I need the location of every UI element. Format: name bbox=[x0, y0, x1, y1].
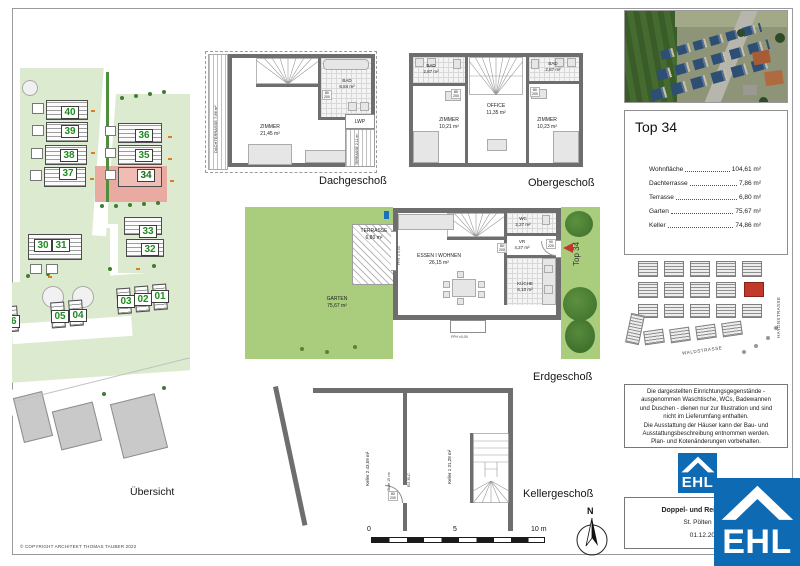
hedge-strip bbox=[106, 72, 109, 202]
map-highlighted-unit bbox=[744, 282, 764, 297]
bathtub bbox=[323, 59, 369, 70]
wall bbox=[403, 503, 407, 531]
dotted-leader bbox=[671, 213, 733, 214]
area-row: Keller74,86 m² bbox=[625, 215, 787, 229]
garage bbox=[46, 264, 58, 274]
photo-gray-house bbox=[743, 85, 757, 95]
tree-dot bbox=[26, 274, 30, 278]
bed bbox=[553, 131, 579, 163]
photo-red-roof-house bbox=[764, 70, 784, 86]
floor-plan-erdgeschoss: TERRASSE6,80 m² GARTEN75,67 m² WC2,27 m²… bbox=[245, 195, 600, 387]
lwp-label: LWP bbox=[346, 119, 374, 126]
area-label: Wohnfläche bbox=[649, 166, 683, 173]
wall bbox=[447, 237, 507, 240]
street-name-bottom: WALDSTRASSE bbox=[682, 345, 723, 356]
unit-number-34: 34 bbox=[137, 169, 155, 182]
keller1-label: Keller 1 31,28 m² bbox=[447, 445, 452, 489]
terrace-door-opening bbox=[391, 231, 396, 271]
ehl-logo-large: EHL bbox=[714, 478, 800, 566]
map-block bbox=[625, 313, 645, 345]
street-name-right: HAYDNSTRASSE bbox=[776, 268, 781, 338]
kueche-label: KÜCHE6,10 m² bbox=[509, 281, 541, 293]
copyright-note: © COPYRIGHT ARCHITEKT THOMAS TAUBER 2022 bbox=[20, 544, 136, 549]
kellergeschoss-label: Kellergeschoß bbox=[523, 488, 593, 500]
map-block bbox=[638, 282, 658, 298]
unit-info-box: Top 34 Wohnfläche104,61 m² Dachterrasse7… bbox=[624, 110, 788, 255]
fph-label: FPH ±0,00 bbox=[397, 243, 401, 265]
site-plan-label: Übersicht bbox=[130, 486, 174, 498]
dining-table bbox=[452, 279, 476, 297]
erd-stair bbox=[447, 213, 505, 237]
area-row: Wohnfläche104,61 m² bbox=[625, 159, 787, 173]
survey-marker bbox=[48, 276, 52, 278]
tree-dot bbox=[128, 203, 132, 207]
ehl-roof-icon bbox=[717, 478, 798, 523]
north-arrow: N bbox=[570, 506, 614, 558]
disclaimer-line: ausgenommen Waschtische, WCs, Badewannen bbox=[625, 396, 787, 404]
compass-icon bbox=[570, 515, 614, 559]
area-value: 104,61 m² bbox=[732, 166, 761, 173]
survey-marker bbox=[91, 152, 95, 154]
zimmer-left-label: ZIMMER10,21 m² bbox=[427, 117, 471, 130]
tree-dot bbox=[134, 94, 138, 98]
unit-number-37: 37 bbox=[59, 167, 77, 180]
unit-number-40: 40 bbox=[61, 106, 79, 119]
wall bbox=[526, 81, 583, 84]
survey-marker bbox=[91, 110, 95, 112]
disclaimer-line: Die Ausstattung der Häuser kann der Bau-… bbox=[625, 422, 787, 430]
dotted-leader bbox=[676, 199, 737, 200]
unit-number-33: 33 bbox=[139, 225, 157, 238]
door-size-tag: 80200 bbox=[451, 89, 461, 99]
tree-dot bbox=[102, 392, 106, 396]
map-tree-dot bbox=[742, 350, 746, 354]
floor-plan-dachgeschoss: DACHTERRASSE 7,86 m² BAD6,84 m² 80200 ZI… bbox=[200, 40, 396, 192]
area-label: Dachterrasse bbox=[649, 180, 688, 187]
tree bbox=[563, 287, 597, 321]
garten-label: GARTEN75,67 m² bbox=[315, 296, 359, 309]
tree-dot bbox=[162, 90, 166, 94]
map-block bbox=[669, 327, 691, 344]
disclaimer-box: Die dargestellten Einrichtungsgegenständ… bbox=[624, 384, 788, 448]
garage bbox=[32, 125, 44, 136]
stove bbox=[544, 285, 553, 294]
unit-number-39: 39 bbox=[61, 125, 79, 138]
area-label: Keller bbox=[649, 222, 666, 229]
unit-number-03: 03 bbox=[117, 295, 135, 308]
garage bbox=[31, 148, 43, 159]
chair bbox=[443, 281, 450, 288]
keller-stair bbox=[473, 433, 509, 503]
disclaimer-line: Die dargestellten Einrichtungsgegenständ… bbox=[625, 388, 787, 396]
floor-plan-kellergeschoss: 80200 Keller 2 43,59 m² Stufe 15 cm EI2 … bbox=[265, 385, 600, 531]
map-block bbox=[643, 329, 665, 346]
scale-five: 5 bbox=[453, 526, 457, 533]
wohnen-label: ESSEN I WOHNEN26,15 m² bbox=[413, 253, 465, 266]
room-lwp: LWP bbox=[345, 114, 375, 129]
diagonal-wall bbox=[273, 386, 307, 526]
unit-tag-label: Top 34 bbox=[572, 232, 581, 266]
wc-fixture bbox=[453, 59, 461, 69]
unit-number-36: 36 bbox=[135, 129, 153, 142]
tree-dot bbox=[114, 204, 118, 208]
map-block bbox=[742, 261, 762, 277]
map-tree-dot bbox=[766, 336, 770, 340]
area-label: Garten bbox=[649, 208, 669, 215]
disclaimer-line: und Duschen - dienen nur zur Illustratio… bbox=[625, 405, 787, 413]
wc-fixture bbox=[542, 215, 550, 225]
scale-bar bbox=[371, 537, 545, 543]
garage bbox=[30, 170, 42, 181]
tree-dot bbox=[162, 386, 166, 390]
floor-plan-obergeschoss: BAD2,87 m² BAD2,87 m² OFFICE11,35 m² ZIM… bbox=[405, 35, 597, 191]
disclaimer-line: Ausstattungsbeschreibung entnommen werde… bbox=[625, 430, 787, 438]
sink bbox=[544, 265, 553, 273]
map-block bbox=[716, 304, 736, 318]
door-size-tag: 80200 bbox=[322, 90, 332, 100]
photo-horizon bbox=[675, 11, 788, 27]
desk bbox=[487, 139, 507, 151]
door-size-tag: 80200 bbox=[497, 243, 507, 253]
zimmer-label: ZIMMER21,45 m² bbox=[246, 124, 294, 137]
ehl-logo-small: EHL bbox=[678, 453, 717, 493]
scale-ten: 10 m bbox=[531, 526, 547, 533]
wall bbox=[313, 388, 513, 393]
tree-dot bbox=[156, 201, 160, 205]
area-value: 7,86 m² bbox=[739, 180, 761, 187]
keller2-label: Keller 2 43,59 m² bbox=[365, 447, 370, 491]
bed bbox=[413, 131, 439, 163]
unit-title: Top 34 bbox=[625, 111, 787, 135]
erdgeschoss-label: Erdgeschoß bbox=[533, 371, 592, 383]
door-size-tag: 80200 bbox=[530, 87, 540, 97]
dotted-leader bbox=[685, 171, 730, 172]
survey-marker bbox=[90, 178, 94, 180]
sofa bbox=[398, 214, 454, 230]
area-value: 75,67 m² bbox=[735, 208, 761, 215]
stufe-label: Stufe 15 cm bbox=[387, 457, 391, 491]
unit-number-31: 31 bbox=[52, 239, 70, 252]
wall bbox=[504, 233, 556, 236]
wall bbox=[465, 53, 468, 167]
area-row: Garten75,67 m² bbox=[625, 201, 787, 215]
area-row: Dachterrasse7,86 m² bbox=[625, 173, 787, 187]
washbasin bbox=[348, 102, 357, 111]
site-plan: 40 39 38 37 36 35 34 33 32 30 31 06 05 0… bbox=[12, 8, 190, 555]
dach-stair bbox=[256, 58, 320, 84]
unit-number-02: 02 bbox=[134, 293, 152, 306]
map-block bbox=[690, 304, 710, 318]
tree-dot bbox=[100, 204, 104, 208]
office-label: OFFICE11,35 m² bbox=[475, 103, 517, 116]
tree-dot bbox=[148, 92, 152, 96]
bad-left-label: BAD2,87 m² bbox=[415, 63, 447, 75]
tree bbox=[565, 319, 595, 353]
map-block bbox=[721, 321, 743, 338]
garage bbox=[32, 103, 44, 114]
utility-marker bbox=[384, 211, 389, 219]
unit-number-05: 05 bbox=[51, 310, 69, 323]
door-size-tag: 90220 bbox=[546, 239, 556, 249]
unit-number-38: 38 bbox=[60, 149, 78, 162]
terrasse-small-label: TERRASSE 2,11 m² bbox=[355, 133, 359, 165]
area-value: 6,80 m² bbox=[739, 194, 761, 201]
entrance-door-opening bbox=[556, 240, 561, 258]
map-block bbox=[695, 324, 717, 341]
unit-number-32: 32 bbox=[141, 243, 159, 256]
map-block bbox=[664, 282, 684, 298]
obergeschoss-label: Obergeschoß bbox=[528, 177, 595, 189]
fph-label: FPH ±0,00 bbox=[451, 335, 468, 339]
map-block bbox=[638, 261, 658, 277]
bush bbox=[353, 345, 357, 349]
door-size-tag: 80200 bbox=[388, 491, 398, 501]
room-dach-terrasse-small: TERRASSE 2,11 m² bbox=[345, 129, 375, 167]
unit-number-04: 04 bbox=[69, 309, 87, 322]
disclaimer-line: nicht im Lieferumfang enthalten. bbox=[625, 413, 787, 421]
aerial-photo bbox=[624, 10, 788, 103]
survey-marker bbox=[170, 180, 174, 182]
map-block bbox=[716, 261, 736, 277]
map-block bbox=[716, 282, 736, 298]
ehl-logo-text: EHL bbox=[722, 523, 792, 562]
map-block bbox=[664, 304, 684, 318]
tree-dot bbox=[108, 267, 112, 271]
tree-dot bbox=[152, 264, 156, 268]
tree-dot bbox=[142, 202, 146, 206]
chair bbox=[478, 291, 485, 298]
wall bbox=[256, 84, 320, 87]
fire-door-label: EI2 30-C bbox=[407, 455, 411, 487]
bad-label: BAD6,84 m² bbox=[330, 78, 364, 90]
dotted-leader bbox=[690, 185, 737, 186]
entry-porch bbox=[450, 320, 486, 333]
map-block bbox=[742, 304, 762, 318]
map-block bbox=[664, 261, 684, 277]
chair bbox=[457, 298, 464, 305]
ehl-roof-icon bbox=[680, 453, 716, 474]
ober-stair bbox=[469, 57, 523, 95]
survey-marker bbox=[136, 268, 140, 270]
survey-marker bbox=[168, 158, 172, 160]
chair bbox=[478, 281, 485, 288]
tree-outline bbox=[22, 80, 38, 96]
dotted-leader bbox=[668, 227, 734, 228]
tree-dot bbox=[120, 96, 124, 100]
survey-marker bbox=[168, 136, 172, 138]
ehl-logo-text: EHL bbox=[682, 474, 714, 491]
bush bbox=[300, 347, 304, 351]
area-label: Terrasse bbox=[649, 194, 674, 201]
map-block bbox=[690, 261, 710, 277]
unit-number-06: 06 bbox=[12, 315, 20, 328]
zimmer-right-label: ZIMMER10,23 m² bbox=[525, 117, 569, 130]
photo-tree bbox=[759, 97, 768, 103]
vr-label: VR4,27 m² bbox=[507, 239, 537, 251]
photo-tree bbox=[737, 29, 745, 37]
bush bbox=[325, 350, 329, 354]
chair bbox=[457, 271, 464, 278]
scale-zero: 0 bbox=[367, 526, 371, 533]
map-tree-dot bbox=[754, 344, 758, 348]
garage bbox=[105, 126, 116, 136]
area-table: Wohnfläche104,61 m² Dachterrasse7,86 m² … bbox=[625, 159, 787, 229]
area-row: Terrasse6,80 m² bbox=[625, 187, 787, 201]
dachterrasse-label: DACHTERRASSE 7,86 m² bbox=[213, 75, 218, 153]
wardrobe bbox=[305, 150, 347, 163]
unit-number-30: 30 bbox=[34, 239, 52, 252]
map-block bbox=[690, 282, 710, 298]
wc-label: WC2,27 m² bbox=[509, 216, 537, 228]
washbasin bbox=[360, 102, 369, 111]
bed bbox=[248, 144, 292, 165]
unit-number-01: 01 bbox=[151, 290, 169, 303]
disclaimer-line: Plan- und Kotenänderungen vorbehalten. bbox=[625, 438, 787, 446]
garage bbox=[105, 170, 116, 180]
plan-sheet: 40 39 38 37 36 35 34 33 32 30 31 06 05 0… bbox=[0, 0, 800, 566]
bad-right-label: BAD2,87 m² bbox=[537, 61, 569, 73]
area-value: 74,86 m² bbox=[735, 222, 761, 229]
garage bbox=[30, 264, 42, 274]
garage bbox=[105, 148, 116, 158]
photo-tree bbox=[775, 33, 785, 43]
unit-number-35: 35 bbox=[135, 149, 153, 162]
key-map: HAYDNSTRASSE WALDSTRASSE bbox=[626, 256, 786, 370]
wall bbox=[409, 83, 467, 86]
chair bbox=[443, 291, 450, 298]
dachgeschoss-label: Dachgeschoß bbox=[319, 175, 387, 187]
room-dachterrasse: DACHTERRASSE 7,86 m² bbox=[208, 54, 228, 170]
